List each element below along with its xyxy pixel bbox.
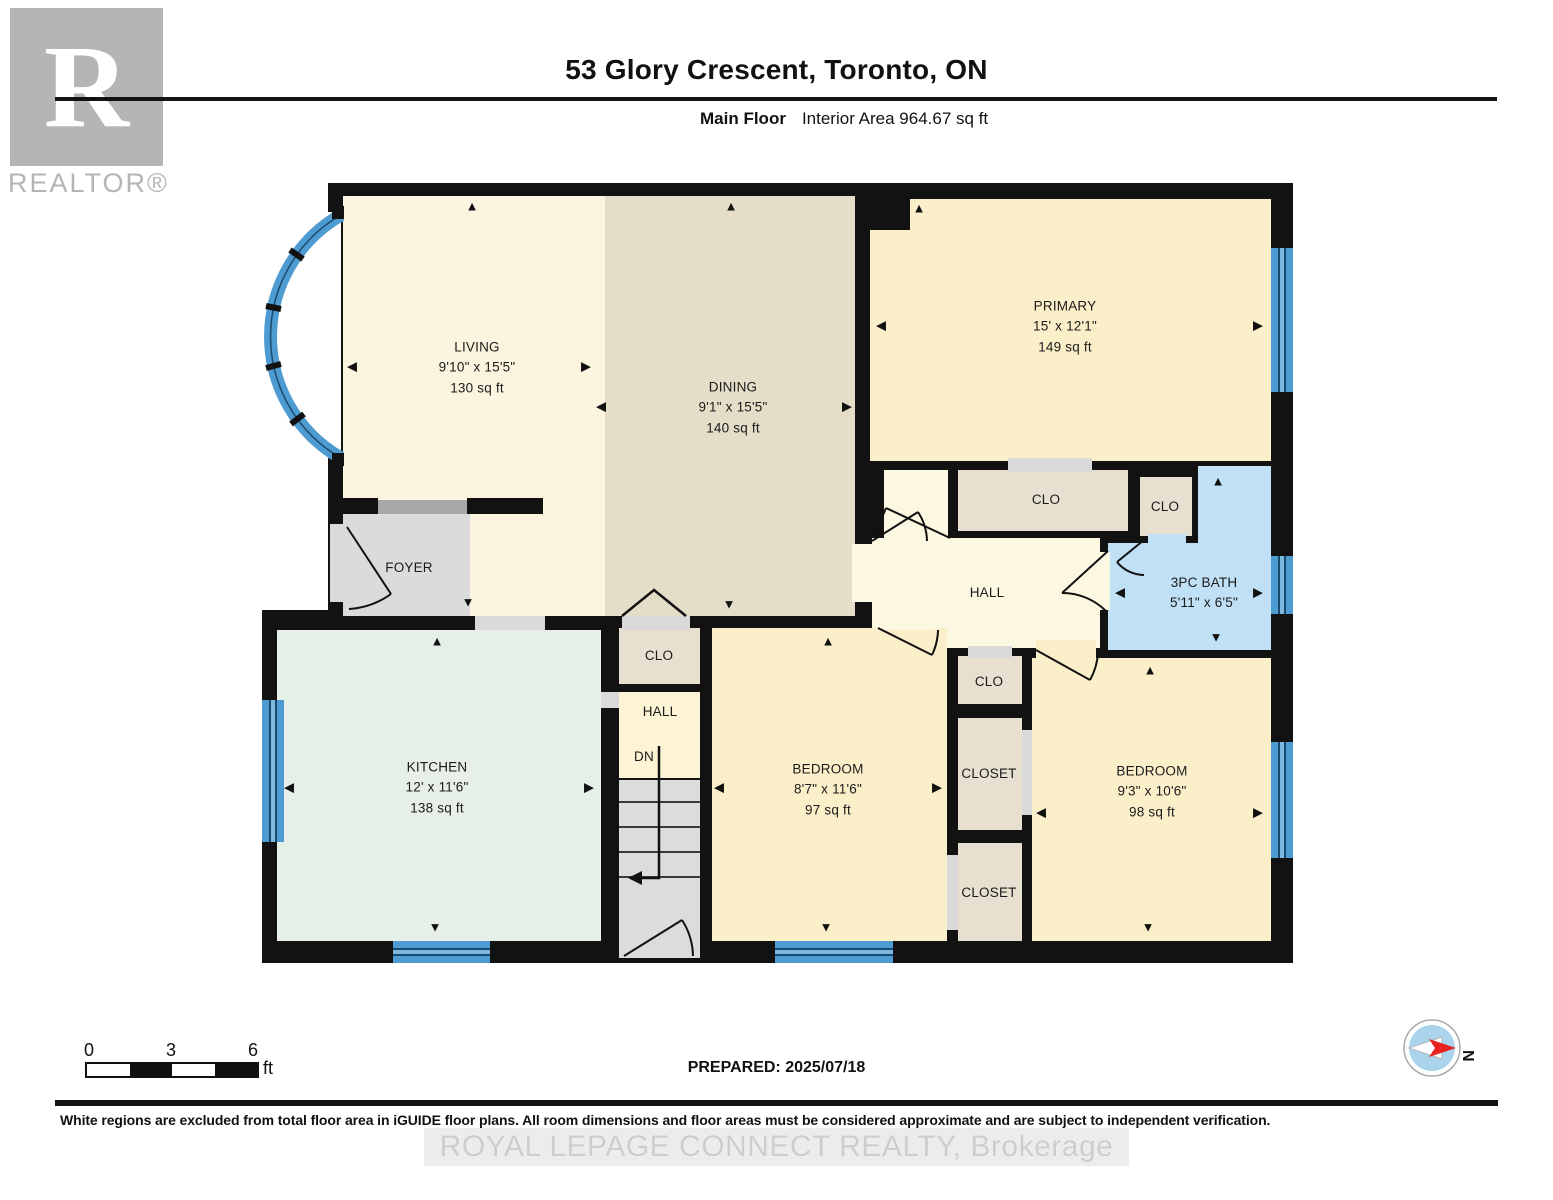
sill-closet-lower — [947, 855, 958, 930]
room-bath-a — [1198, 466, 1271, 650]
interior-area-label: Interior Area 964.67 sq ft — [802, 109, 988, 129]
room-name: PRIMARY — [1033, 297, 1097, 317]
dim-arrow-down: ▼ — [1210, 631, 1223, 644]
dim-arrow-down: ▼ — [723, 598, 736, 611]
label-bath: 3PC BATH 5'11" x 6'5" — [1170, 573, 1238, 614]
opening-living-kitchen — [475, 616, 545, 630]
label-closet-lower: CLOSET — [961, 883, 1016, 903]
label-bedroom2: BEDROOM 9'3" x 10'6" 98 sq ft — [1116, 762, 1187, 823]
sill-closet-upper — [1022, 730, 1032, 815]
room-area: 98 sq ft — [1116, 802, 1187, 822]
room-area: 149 sq ft — [1033, 337, 1097, 357]
stairs — [619, 780, 700, 958]
opening-closet-bath — [1148, 534, 1186, 545]
dim-arrow-left: ◀ — [876, 319, 886, 332]
wall-notch-primary — [868, 183, 910, 230]
room-dims: 9'1" x 15'5" — [699, 398, 768, 418]
dim-arrow-right: ▶ — [842, 400, 852, 413]
dim-arrow-right: ▶ — [1253, 586, 1263, 599]
sill-primary-closet — [1008, 458, 1092, 472]
wall-foyer-right — [467, 498, 543, 514]
label-dn: DN — [634, 747, 654, 767]
window-bedroom1-bottom — [775, 941, 893, 963]
dim-arrow-right: ▶ — [1253, 806, 1263, 819]
window-primary — [1271, 248, 1293, 392]
window-kitchen-bottom — [393, 941, 490, 963]
footer-divider — [55, 1100, 1498, 1106]
dim-arrow-up: ▲ — [1144, 664, 1157, 677]
room-dims: 15' x 12'1" — [1033, 317, 1097, 337]
brokerage-watermark-text: ROYAL LEPAGE CONNECT REALTY, Brokerage — [424, 1128, 1130, 1166]
dim-arrow-left: ◀ — [284, 781, 294, 794]
dim-arrow-right: ▶ — [581, 360, 591, 373]
opening-hall-bath — [1096, 552, 1110, 610]
dim-arrow-up: ▲ — [725, 200, 738, 213]
room-area: 140 sq ft — [699, 418, 768, 438]
subtitle: Main Floor Interior Area 964.67 sq ft — [700, 109, 988, 129]
opening-hall-primary — [884, 470, 948, 538]
sill-closet-bedroom-small — [968, 646, 1012, 658]
room-area: 138 sq ft — [406, 798, 469, 818]
opening-hall-bedroom2 — [1036, 640, 1096, 660]
dim-arrow-left: ◀ — [347, 360, 357, 373]
label-hall-upper: HALL — [970, 583, 1005, 603]
dim-arrow-up: ▲ — [466, 200, 479, 213]
dim-arrow-up: ▲ — [1212, 475, 1225, 488]
dim-arrow-down: ▼ — [820, 921, 833, 934]
label-clo-primary-small: CLO — [1151, 497, 1179, 517]
dim-arrow-down: ▼ — [429, 921, 442, 934]
room-name: BEDROOM — [792, 760, 863, 780]
label-clo-primary: CLO — [1032, 490, 1060, 510]
opening-kitchen-hall — [601, 692, 619, 708]
title-divider — [55, 97, 1497, 101]
foyer-shelf — [378, 500, 467, 514]
realtor-logo-word: REALTOR® — [8, 168, 169, 199]
window-bath — [1271, 556, 1293, 614]
label-closet-upper: CLOSET — [961, 764, 1016, 784]
scale-tick-0: 0 — [84, 1040, 94, 1061]
room-name: BEDROOM — [1116, 762, 1187, 782]
dim-arrow-up: ▲ — [822, 635, 835, 648]
wall-foyer-left — [343, 498, 378, 514]
prepared-date: PREPARED: 2025/07/18 — [0, 1059, 1553, 1077]
room-dims: 9'10" x 15'5" — [439, 358, 516, 378]
brokerage-watermark: ROYAL LEPAGE CONNECT REALTY, Brokerage — [0, 1128, 1553, 1166]
dim-arrow-down: ▼ — [1142, 921, 1155, 934]
dim-arrow-down: ▼ — [462, 596, 475, 609]
room-name: LIVING — [439, 338, 516, 358]
disclaimer-text: White regions are excluded from total fl… — [60, 1112, 1270, 1128]
room-area: 130 sq ft — [439, 378, 516, 398]
opening-foyer-entry — [330, 524, 343, 602]
room-dims: 9'3" x 10'6" — [1116, 782, 1187, 802]
compass-needle-west — [1409, 1037, 1442, 1059]
label-kitchen: KITCHEN 12' x 11'6" 138 sq ft — [406, 758, 469, 819]
dim-arrow-up: ▲ — [913, 202, 926, 215]
label-clo-stairhall: CLO — [645, 646, 673, 666]
label-dining: DINING 9'1" x 15'5" 140 sq ft — [699, 378, 768, 439]
dim-arrow-left: ◀ — [1036, 806, 1046, 819]
dim-arrow-up: ▲ — [431, 635, 444, 648]
label-bedroom1: BEDROOM 8'7" x 11'6" 97 sq ft — [792, 760, 863, 821]
compass-needle-north — [1429, 1039, 1456, 1057]
room-name: KITCHEN — [406, 758, 469, 778]
opening-dining-hall — [852, 544, 874, 602]
dim-arrow-left: ◀ — [714, 781, 724, 794]
dim-arrow-left: ◀ — [1115, 586, 1125, 599]
opening-hall-bedroom1 — [882, 612, 934, 630]
label-clo-bedroom: CLO — [975, 672, 1003, 692]
page-title: 53 Glory Crescent, Toronto, ON — [0, 54, 1553, 86]
window-kitchen-left — [262, 700, 284, 842]
window-bedroom2 — [1271, 742, 1293, 858]
label-hall-lower: HALL — [643, 702, 678, 722]
dim-arrow-right: ▶ — [1253, 319, 1263, 332]
label-foyer: FOYER — [385, 558, 433, 578]
room-dims: 5'11" x 6'5" — [1170, 593, 1238, 613]
dim-arrow-left: ◀ — [596, 400, 606, 413]
opening-dining-closet — [622, 616, 690, 630]
room-name: DINING — [699, 378, 768, 398]
floor-label: Main Floor — [700, 109, 786, 129]
label-living: LIVING 9'10" x 15'5" 130 sq ft — [439, 338, 516, 399]
dim-arrow-right: ▶ — [584, 781, 594, 794]
room-dims: 12' x 11'6" — [406, 778, 469, 798]
label-primary: PRIMARY 15' x 12'1" 149 sq ft — [1033, 297, 1097, 358]
room-area: 97 sq ft — [792, 800, 863, 820]
floorplan-page: R REALTOR® 53 Glory Crescent, Toronto, O… — [0, 0, 1553, 1200]
dim-arrow-right: ▶ — [932, 781, 942, 794]
room-dims: 8'7" x 11'6" — [792, 780, 863, 800]
scale-tick-3: 3 — [166, 1040, 176, 1061]
room-name: 3PC BATH — [1170, 573, 1238, 593]
bay-window-cutout — [328, 212, 341, 458]
realtor-logo: R — [10, 8, 163, 166]
scale-tick-6: 6 — [248, 1040, 258, 1061]
realtor-logo-letter: R — [44, 28, 129, 146]
